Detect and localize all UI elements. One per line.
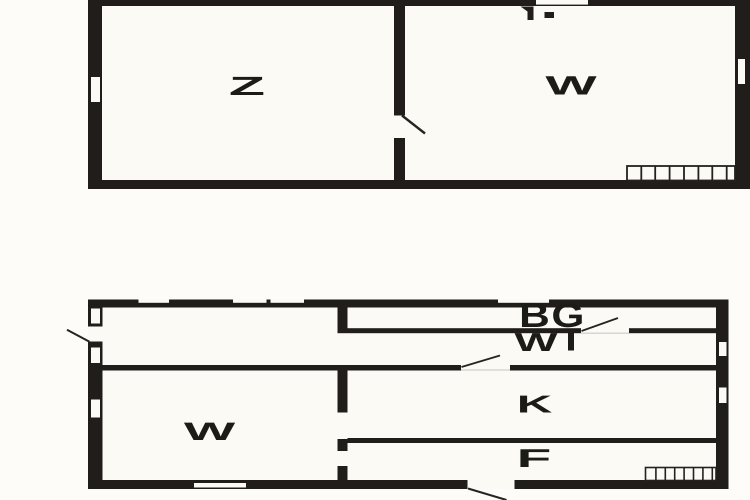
svg-text:F: F [517, 445, 552, 473]
svg-text:Z: Z [229, 71, 265, 101]
svg-text:K: K [517, 392, 553, 419]
svg-text:W: W [515, 327, 559, 357]
svg-text:W: W [184, 418, 236, 446]
svg-text:W: W [545, 71, 596, 101]
